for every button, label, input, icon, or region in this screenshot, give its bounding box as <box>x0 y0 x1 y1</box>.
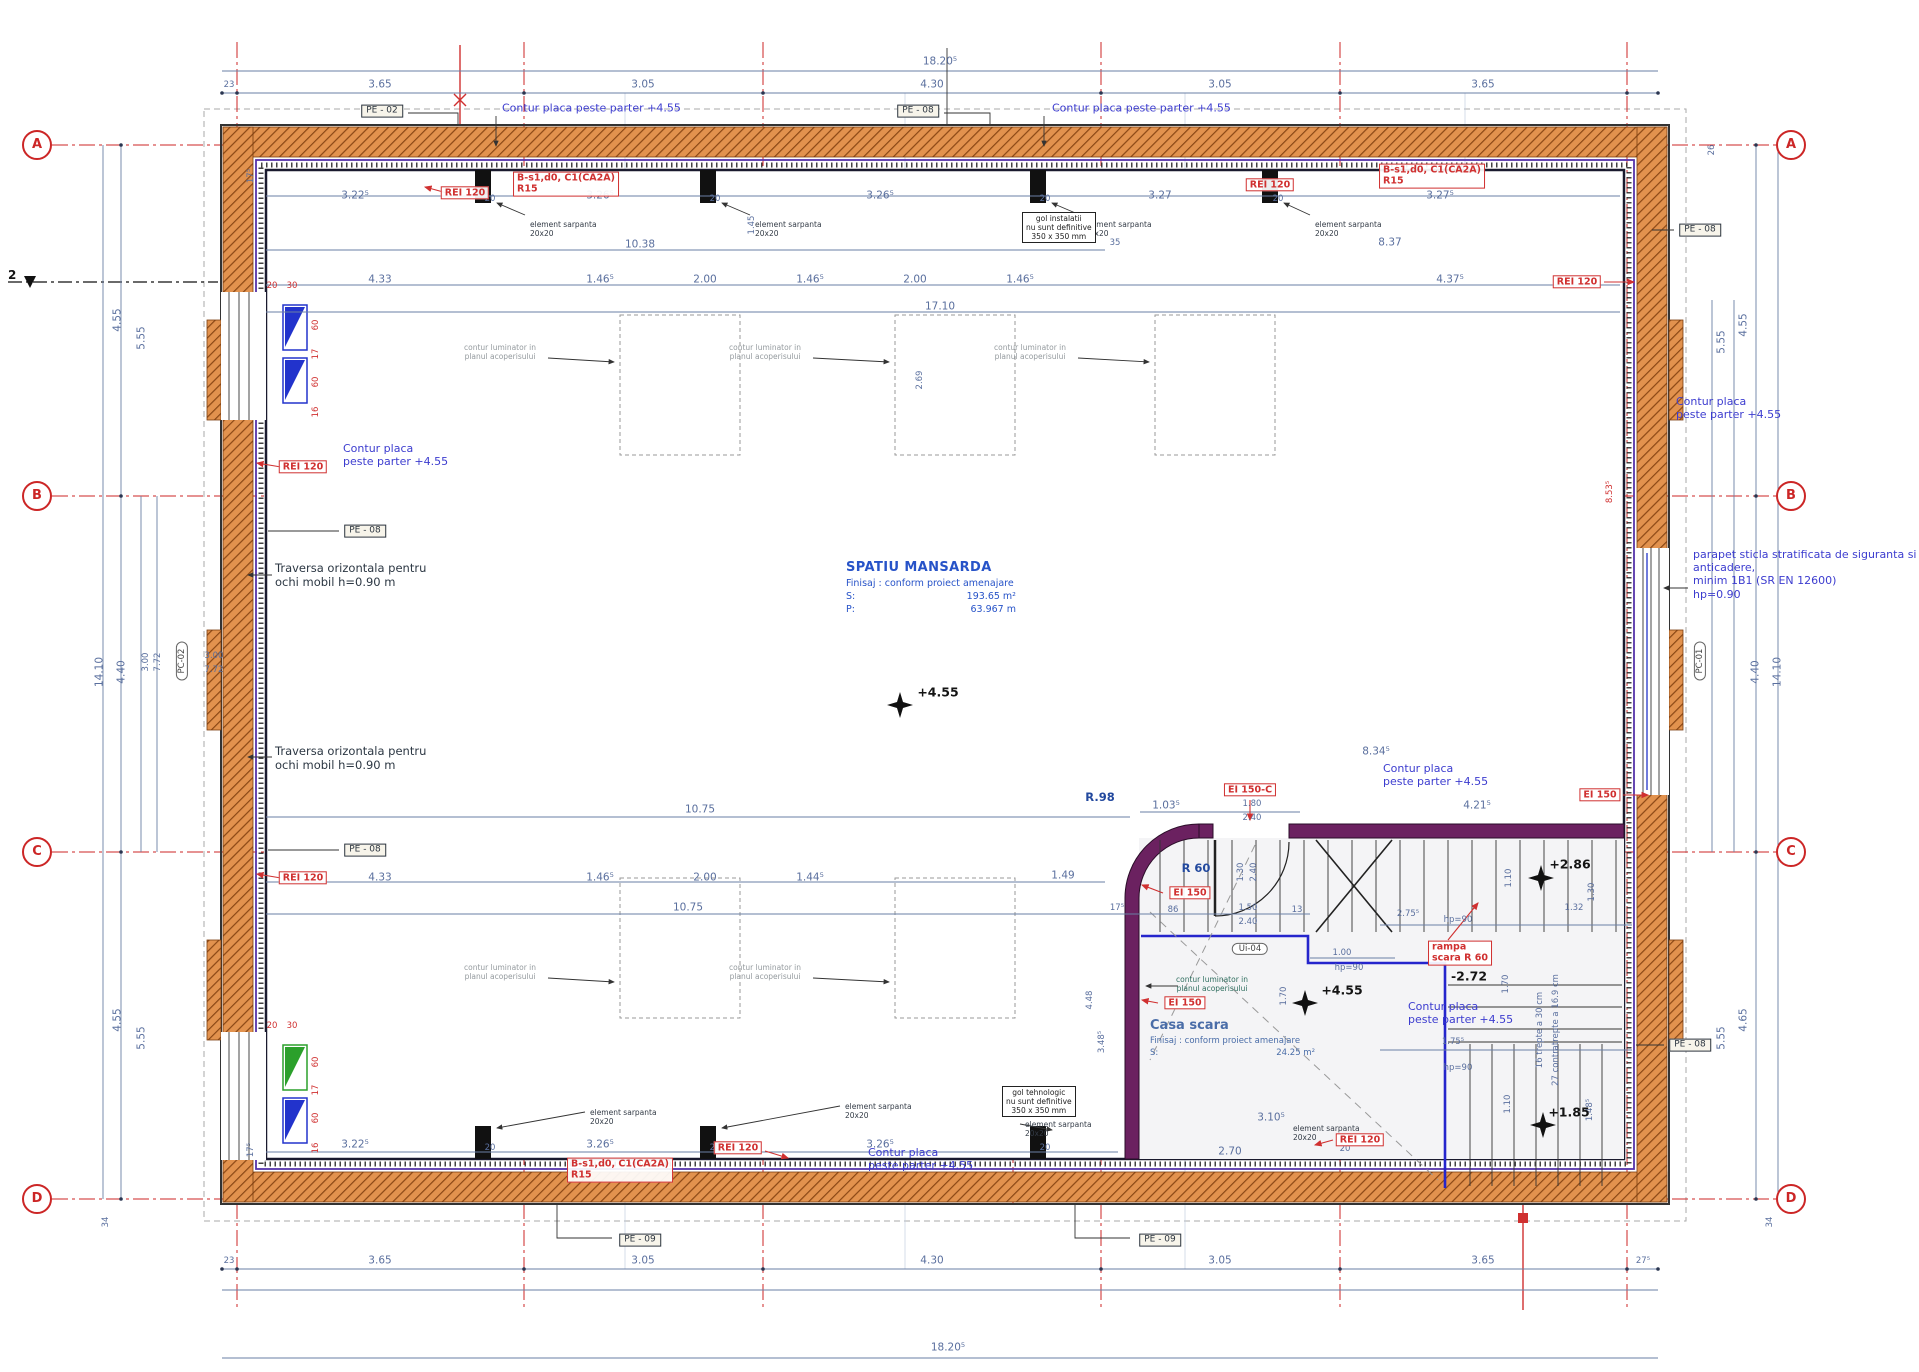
dimension-label: 1.03⁵ <box>1152 800 1180 813</box>
dimension-label: 2.00 <box>693 274 716 287</box>
level-value-label: +4.55 <box>917 685 958 700</box>
dimension-label: 1.70 <box>1279 987 1289 1006</box>
dimension-label: 7.72 <box>153 653 163 672</box>
annotation-note: parapet sticla stratificata de siguranta… <box>1693 548 1917 601</box>
dimension-label: 34 <box>1765 1217 1775 1228</box>
dimension-label: 3.05 <box>631 1255 654 1268</box>
fire-rating-label: B-s1,d0, C1(CA2A)R15 <box>1379 164 1485 189</box>
dimension-label: 5.55 <box>136 326 149 349</box>
annotation-note: Contur placa peste parter +4.55 <box>1052 101 1231 114</box>
dimension-label: 17 <box>311 1085 321 1096</box>
dimension-label: 14.10 <box>1772 657 1785 687</box>
dimension-label: 60 <box>311 1113 321 1124</box>
annotation-note: element sarpanta20x20 <box>1293 1124 1360 1142</box>
annotation-note: contur luminator inplanul acoperisului <box>729 343 801 361</box>
dimension-label: 27 contratrepte a 16.9 cm <box>1551 974 1561 1086</box>
room-finish-note: Finisaj : conform proiect amenajare <box>846 578 1016 589</box>
grid-bubble-b: B <box>22 481 52 511</box>
panel-tag: PE - 08 <box>344 844 386 857</box>
fire-rating-label: B-s1,d0, C1(CA2A)R15 <box>513 172 619 197</box>
dimension-label: 1.10 <box>1504 869 1514 888</box>
annotation-note: Contur placapeste parter +4.55 <box>868 1146 973 1172</box>
dimension-label: 10.38 <box>625 239 655 252</box>
fire-rating-label: EI 150 <box>1579 788 1620 801</box>
floor-plan-page: 18.20⁵233.653.054.303.053.65233.653.054.… <box>0 0 1919 1372</box>
room-title: Casa scara <box>1150 1018 1315 1033</box>
room-block-mansarda: SPATIU MANSARDA Finisaj : conform proiec… <box>846 560 1016 615</box>
dimension-label: 3.27⁵ <box>1426 190 1454 203</box>
dimension-label: 17⁵ <box>1110 903 1124 913</box>
room-area-value: 193.65 m² <box>967 591 1016 602</box>
dimension-label: 1.44⁵ <box>796 872 824 885</box>
dimension-label: 1.00 <box>1333 948 1352 958</box>
annotation-note: contur luminator inplanul acoperisului <box>464 963 536 981</box>
annotation-note: element sarpanta20x20 <box>590 1108 657 1126</box>
dimension-label: 4.33 <box>368 274 391 287</box>
grid-bubble-d: D <box>1776 1184 1806 1214</box>
dimension-label: 4.48 <box>1085 991 1095 1010</box>
annotation-note: Contur placapeste parter +4.55 <box>1408 1000 1513 1026</box>
annotation-note: contur luminator inplanul acoperisului <box>994 343 1066 361</box>
annotation-note: element sarpanta20x20 <box>755 220 822 238</box>
dimension-label: 8.37 <box>1378 237 1401 250</box>
radius-label: R.98 <box>1085 791 1114 805</box>
annotation-note: element sarpanta20x20 <box>1315 220 1382 238</box>
dimension-label: 2.00 <box>693 872 716 885</box>
panel-tag: PE - 08 <box>344 525 386 538</box>
dimension-label: 1.46⁵ <box>1006 274 1034 287</box>
fire-rating-label: REI 120 <box>279 871 327 884</box>
dimension-label: 4.65 <box>1738 1008 1751 1031</box>
fire-rating-label: B-s1,d0, C1(CA2A)R15 <box>567 1158 673 1183</box>
dimension-label: 3.10⁵ <box>1257 1112 1285 1125</box>
dimension-label: 17⁵ <box>246 1143 256 1157</box>
dimension-label: 1.46⁵ <box>586 274 614 287</box>
dimension-label: 23 <box>224 80 235 90</box>
dimension-label: 3.65 <box>368 79 391 92</box>
fire-rating-label: REI 120 <box>441 186 489 199</box>
dimension-label: 1.49 <box>1051 870 1074 883</box>
dimension-label: 18.20⁵ <box>931 1342 965 1355</box>
dimension-label: 30 <box>287 281 298 291</box>
dimension-label: 3.00 <box>141 653 151 672</box>
annotation-note: gol tehnologicnu sunt definitive350 x 35… <box>1002 1086 1076 1117</box>
dimension-label: 3.48⁵ <box>1097 1031 1107 1053</box>
room-area-label: S: <box>846 591 855 602</box>
annotation-note: Contur placapeste parter +4.55 <box>1676 395 1781 421</box>
room-perimeter-label: P: <box>846 604 855 615</box>
annotation-note: Contur placapeste parter +4.55 <box>1383 762 1488 788</box>
annotation-note: Traversa orizontala pentruochi mobil h=0… <box>275 745 426 773</box>
fire-rating-label: REI 120 <box>714 1141 762 1154</box>
dimension-label: 2.75⁵ <box>1397 909 1419 919</box>
dimension-label: 16 <box>311 1143 321 1154</box>
fire-rating-label: EI 150 <box>1164 996 1205 1009</box>
grid-bubble-a: A <box>22 130 52 160</box>
dimension-label: 14.10 <box>94 657 107 687</box>
dimension-label: hp=90 <box>1335 963 1364 973</box>
dimension-label: 4.55 <box>112 1008 125 1031</box>
dimension-label: 35 <box>1110 238 1121 248</box>
dimension-label: 2.40 <box>1249 863 1259 882</box>
dimension-label: 30 <box>287 1021 298 1031</box>
dimension-label: 17⁵ <box>246 169 256 183</box>
annotation-note: element sarpanta20x20 <box>1025 1120 1092 1138</box>
annotation-note: element sarpanta20x20 <box>530 220 597 238</box>
dimension-label: 1.70 <box>1501 975 1511 994</box>
dimension-label: 1.30 <box>1236 863 1246 882</box>
dimension-label: 2.00 <box>903 274 926 287</box>
dimension-label: 10.75 <box>685 804 715 817</box>
dimension-label: 4.37⁵ <box>1436 274 1464 287</box>
level-value-label: -2.72 <box>1451 969 1487 984</box>
dimension-label: 1.10 <box>1503 1095 1513 1114</box>
dimension-label: 20 <box>267 1021 278 1031</box>
dimension-label: 3.65 <box>1471 79 1494 92</box>
annotation-note: contur luminator inplanul acoperisului <box>729 963 801 981</box>
dimension-label: 60 <box>311 1057 321 1068</box>
fire-rating-label: EI 150-C <box>1224 783 1276 796</box>
element-tag: PC-02 <box>176 642 188 681</box>
dimension-label: 8.34⁵ <box>1362 746 1390 759</box>
panel-tag: PE - 08 <box>1669 1039 1711 1052</box>
dimension-label: hp=90 <box>1444 915 1473 925</box>
annotation-note: gol instalatiinu sunt definitive350 x 35… <box>1022 212 1096 243</box>
grid-bubble-c: C <box>1776 837 1806 867</box>
dimension-label: 4.40 <box>1750 660 1763 683</box>
dimension-label: 5.55 <box>1716 1026 1729 1049</box>
panel-tag: PE - 09 <box>1139 1234 1181 1247</box>
dimension-label: 3.22⁵ <box>341 1139 369 1152</box>
room-finish-note: Finisaj : conform proiect amenajare <box>1150 1036 1315 1046</box>
dimension-label: 3.05 <box>631 79 654 92</box>
dimension-label: 3.65 <box>368 1255 391 1268</box>
dimension-label: 4.30 <box>920 1255 943 1268</box>
dimension-label: 8.53⁵ <box>1605 481 1615 503</box>
annotation-note: contur luminator inplanul acoperisului <box>464 343 536 361</box>
dimension-label: 3.27 <box>1148 190 1171 203</box>
dimension-label: 1.32 <box>1565 903 1584 913</box>
dimension-label: 3.26⁵ <box>866 190 894 203</box>
dimension-label: 20 <box>1040 1143 1051 1153</box>
dimension-label: 2.70 <box>1218 1146 1241 1159</box>
dimension-label: 34 <box>101 1217 111 1228</box>
grid-bubble-c: C <box>22 837 52 867</box>
dimension-label: 5.55 <box>1716 330 1729 353</box>
dimension-label: 4.33 <box>368 872 391 885</box>
dimension-label: 20 <box>710 194 721 204</box>
dimension-label: 1.50 <box>1239 903 1258 913</box>
annotation-note: Contur placapeste parter +4.55 <box>343 442 448 468</box>
level-value-label: +4.55 <box>1321 983 1362 998</box>
room-title: SPATIU MANSARDA <box>846 560 1016 575</box>
fire-rating-label: REI 120 <box>1246 178 1294 191</box>
grid-bubble-d: D <box>22 1184 52 1214</box>
section-marker-label: 2 <box>8 268 16 282</box>
element-tag: Ui-04 <box>1232 943 1268 955</box>
dimension-label: 3.65 <box>1471 1255 1494 1268</box>
annotation-note: element sarpanta20x20 <box>845 1102 912 1120</box>
dimension-label: 3.00 <box>205 651 224 661</box>
fire-rating-label: EI 150 <box>1169 886 1210 899</box>
dimension-label: 86 <box>1168 905 1179 915</box>
dimension-label: 17 <box>311 349 321 360</box>
panel-tag: PE - 09 <box>619 1234 661 1247</box>
dimension-label: 27⁵ <box>1636 1256 1650 1266</box>
dimension-label: 16 <box>311 407 321 418</box>
dimension-label: 5.55 <box>136 1026 149 1049</box>
dimension-label: 23 <box>224 1256 235 1266</box>
dimension-label: 3.05 <box>1208 79 1231 92</box>
dimension-label: 2.69 <box>915 371 925 390</box>
dimension-label: 1.75⁵ <box>1442 1037 1464 1047</box>
annotation-note: Contur placa peste parter +4.55 <box>502 101 681 114</box>
dimension-label: 20 <box>267 281 278 291</box>
annotation-note: Traversa orizontala pentruochi mobil h=0… <box>275 562 426 590</box>
dimension-label: 4.30 <box>920 79 943 92</box>
dimension-label: 10.75 <box>673 902 703 915</box>
grid-bubble-a: A <box>1776 130 1806 160</box>
fire-rating-label: REI 120 <box>279 460 327 473</box>
panel-tag: PE - 08 <box>1679 224 1721 237</box>
dimension-label: 60 <box>311 377 321 388</box>
dimension-label: 1.80 <box>1243 799 1262 809</box>
dimension-label: 4.40 <box>116 660 129 683</box>
dimension-label: 1.30 <box>1587 883 1597 902</box>
dimension-label: 3.05 <box>1208 1255 1231 1268</box>
radius-label: R 60 <box>1182 862 1211 876</box>
dimension-label: 4.55 <box>1738 313 1751 336</box>
dimension-label: 1.46⁵ <box>586 872 614 885</box>
dimension-label: 3.26⁵ <box>586 1139 614 1152</box>
dimension-label: 17.10 <box>925 301 955 314</box>
room-perimeter-value: 63.967 m <box>970 604 1016 615</box>
dimension-label: 20 <box>1040 194 1051 204</box>
dimension-label: 16 trepte a 30 cm <box>1535 992 1545 1068</box>
dimension-label: 3.22⁵ <box>341 190 369 203</box>
dimension-label: 1.46⁵ <box>796 274 824 287</box>
fire-rating-label: rampascara R 60 <box>1428 941 1492 966</box>
grid-bubble-b: B <box>1776 481 1806 511</box>
dimension-label: 4.55 <box>112 308 125 331</box>
dimension-label: 4.21⁵ <box>1463 800 1491 813</box>
level-value-label: +2.86 <box>1549 857 1590 872</box>
dimension-label: 7.72 <box>205 665 224 675</box>
dimension-label: 26 <box>1707 145 1717 156</box>
fire-rating-label: REI 120 <box>1553 275 1601 288</box>
dimension-label: 2.40 <box>1239 917 1258 927</box>
dimension-label: 20 <box>485 1143 496 1153</box>
dimension-label: 20 <box>1273 194 1284 204</box>
dimension-label: 60 <box>311 320 321 331</box>
room-block-casa-scara: Casa scara Finisaj : conform proiect ame… <box>1150 1018 1315 1058</box>
annotation-note: contur luminator inplanul acoperisului <box>1176 975 1248 993</box>
level-value-label: +1.85 <box>1548 1105 1589 1120</box>
dimension-label: 13 <box>1292 905 1303 915</box>
element-tag: PC-01 <box>1694 642 1706 681</box>
dimension-label: hp=90 <box>1444 1063 1473 1073</box>
room-area-label: S: <box>1150 1048 1158 1058</box>
dimension-label: 2.40 <box>1243 813 1262 823</box>
dimension-label: 18.20⁵ <box>923 56 957 69</box>
room-area-value: 24.25 m² <box>1276 1048 1315 1058</box>
annotation-layer: 18.20⁵233.653.054.303.053.65233.653.054.… <box>0 0 1919 1372</box>
panel-tag: PE - 08 <box>897 105 939 118</box>
panel-tag: PE - 02 <box>361 105 403 118</box>
